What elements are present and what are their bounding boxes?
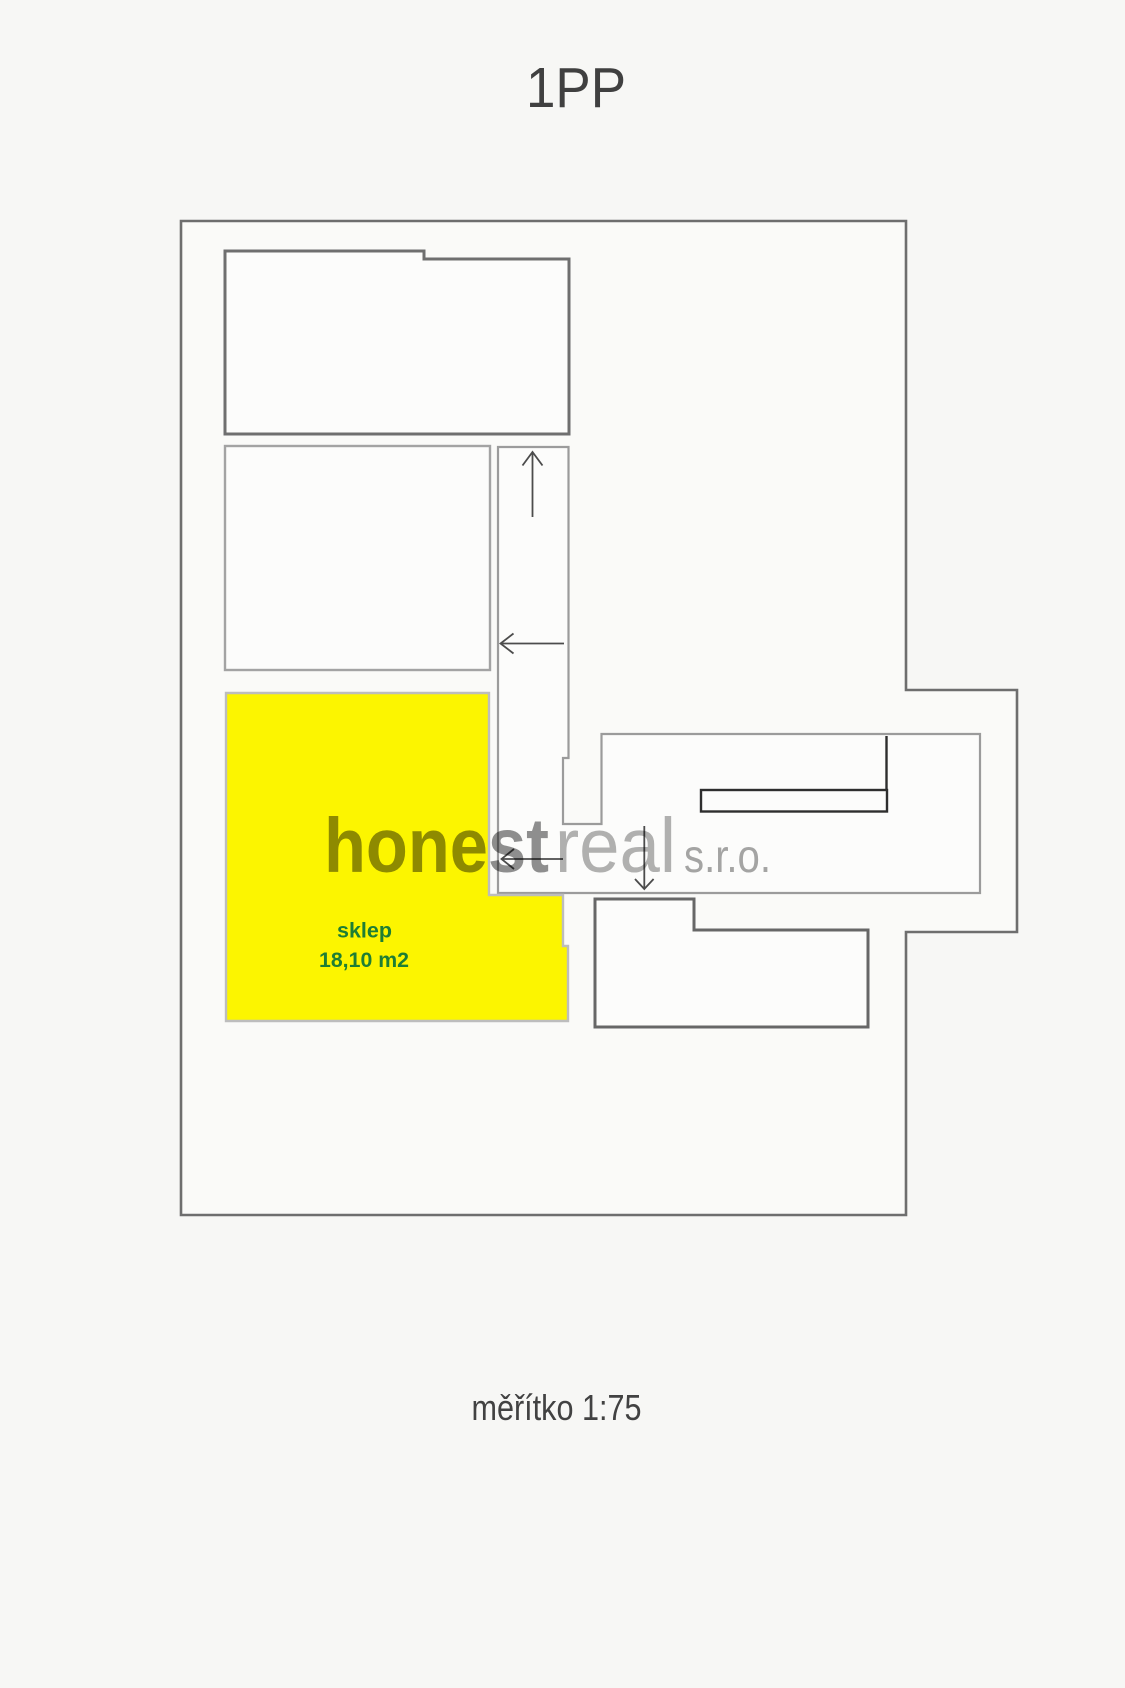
svg-text:real: real [555,803,676,889]
svg-text:18,10 m2: 18,10 m2 [319,949,409,972]
svg-text:honest: honest [324,803,549,889]
svg-text:s.r.o.: s.r.o. [684,830,771,882]
svg-text:měřítko 1:75: měřítko 1:75 [472,1387,642,1428]
svg-text:sklep: sklep [337,920,392,943]
svg-text:1PP: 1PP [526,56,626,120]
